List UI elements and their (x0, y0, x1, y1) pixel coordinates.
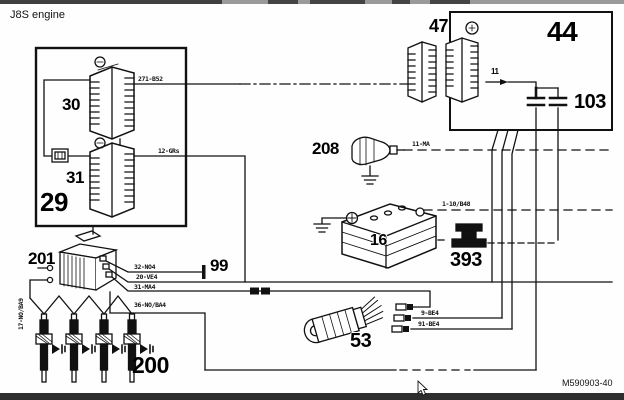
label-393: 393 (450, 250, 482, 270)
id-marker-circle-30 (95, 57, 105, 67)
starter-53 (300, 296, 386, 345)
page-title: J8S engine (10, 10, 65, 21)
glow-plug (36, 314, 65, 382)
connector-47-left (408, 42, 436, 102)
label-30: 30 (62, 96, 80, 113)
label-44: 44 (547, 18, 577, 46)
schematic-page: J8S engine 29 30 31 44 47 103 208 16 393… (0, 0, 624, 400)
wire-label-31ma: 31-MA4 (134, 284, 155, 291)
label-103: 103 (574, 92, 606, 112)
wire-label-271: 271-B52 (138, 76, 163, 83)
wire-label-9: 9-BE4 (421, 310, 439, 317)
connector-30 (90, 64, 134, 139)
wire-label-12: 12-GRs (158, 148, 179, 155)
wiring-diagram-canvas (0, 0, 624, 400)
label-53: 53 (350, 331, 371, 351)
label-16: 16 (370, 233, 387, 249)
label-wire-11: 11 (491, 68, 498, 76)
capacitor-103-symbols (528, 88, 566, 105)
label-201: 201 (28, 250, 55, 267)
label-47: 47 (429, 17, 448, 35)
label-29: 29 (40, 189, 68, 215)
wire-11-arrow (486, 79, 536, 88)
connector-31 (90, 143, 134, 217)
label-99: 99 (210, 257, 228, 274)
wire-label-91: 91-BE4 (418, 321, 439, 328)
label-208: 208 (312, 140, 339, 157)
drawing-reference: M590903-40 (562, 379, 613, 388)
connector-47-right (446, 38, 478, 102)
label-200: 200 (132, 354, 169, 377)
wire-label-11ma: 11-MA (412, 141, 430, 148)
glow-plug (96, 314, 125, 382)
id-marker-circle-31 (95, 138, 105, 148)
harness-vertical-wires (492, 108, 558, 370)
wire-label-110: 1-10/B48 (442, 201, 470, 208)
id-marker-circle-47 (466, 22, 478, 34)
wire-label-17: 17-NO/BA9 (18, 298, 25, 330)
glow-plug (66, 314, 95, 382)
link-393 (438, 224, 558, 247)
sensor-208 (352, 137, 404, 184)
wire-label-32: 32-NO4 (134, 264, 155, 271)
wire-label-20: 20-VE4 (136, 274, 157, 281)
label-31: 31 (66, 169, 84, 186)
mouse-cursor (418, 381, 427, 395)
wire-label-36: 36-NO/BA4 (134, 302, 166, 309)
starter-53-terminals (392, 304, 512, 332)
